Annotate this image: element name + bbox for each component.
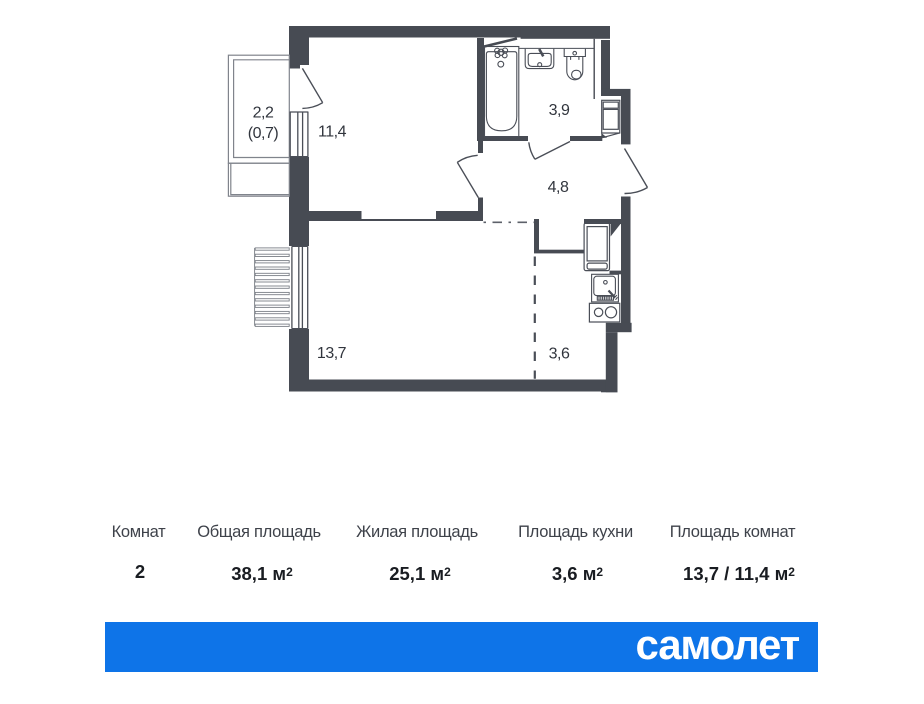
svg-text:4,8: 4,8 — [548, 179, 569, 196]
svg-text:2,2: 2,2 — [253, 105, 274, 122]
svg-text:3,9: 3,9 — [549, 102, 570, 119]
svg-text:(0,7): (0,7) — [248, 125, 279, 142]
svg-text:13,7: 13,7 — [317, 345, 347, 362]
svg-text:3,6: 3,6 — [549, 346, 570, 363]
svg-text:11,4: 11,4 — [318, 124, 347, 141]
